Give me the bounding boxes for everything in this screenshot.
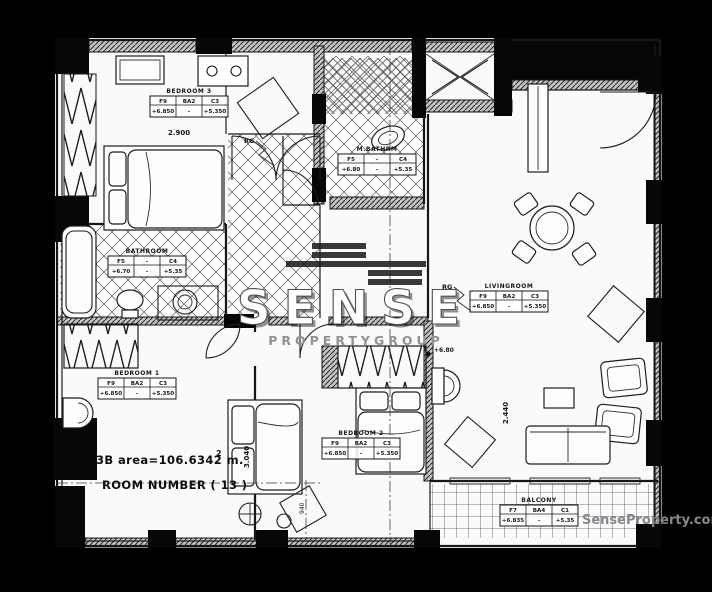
level-value: +5.350	[376, 451, 398, 457]
floorplan-canvas: BEDROOM 3 F9 BA2 C3 +6.850 - +5.350 BATH…	[0, 0, 712, 592]
level-value: +6.835	[502, 518, 524, 524]
level-value: +5.350	[204, 109, 226, 115]
shower-floor-tiles	[322, 58, 422, 114]
level-value: +6.850	[100, 391, 122, 397]
wall-speaker	[63, 398, 93, 428]
rg-marker: RG	[244, 137, 254, 145]
finish-code: F9	[107, 381, 115, 387]
room-name: BEDROOM 1	[114, 370, 159, 377]
finish-code: BA2	[183, 99, 196, 105]
level-value: +5.350	[152, 391, 174, 397]
toilet	[117, 290, 143, 310]
finish-code: C3	[531, 294, 539, 300]
watermark-website: SenseProperty.com	[582, 513, 712, 528]
dimension-label: 2.440	[502, 402, 510, 424]
level-value: +5.35	[556, 518, 575, 524]
room-name: LIVINGROOM	[485, 283, 534, 290]
room-name: BEDROOM 2	[338, 430, 383, 437]
room-number-text: ROOM NUMBER ( 13 )	[102, 478, 247, 492]
finish-code: F5	[117, 259, 125, 265]
finish-code: C1	[561, 508, 569, 514]
tv-cabinet	[432, 368, 444, 404]
wardrobe-bedroom2	[338, 346, 426, 388]
watermark-tagline: PROPERTYGROUP	[268, 333, 444, 348]
room-name: BEDROOM 3	[166, 88, 211, 95]
level-value: +5.35	[394, 167, 413, 173]
finish-code: BA2	[131, 381, 144, 387]
finish-code: BA4	[533, 508, 546, 514]
finish-code: C4	[169, 259, 177, 265]
room-name: BALCONY	[521, 497, 557, 504]
wardrobe-bedroom1	[64, 324, 138, 368]
finish-code: F9	[479, 294, 487, 300]
finish-code: C3	[383, 441, 391, 447]
armchair	[600, 358, 648, 398]
finish-code: BA2	[355, 441, 368, 447]
room-name: BATHROOM	[126, 248, 169, 255]
closet-strip	[64, 74, 96, 196]
bathtub	[62, 226, 96, 318]
level-point	[425, 351, 430, 356]
finish-code: F9	[159, 99, 167, 105]
finish-code: BA2	[503, 294, 516, 300]
dimension-label: 940	[299, 502, 306, 514]
level-value: +6.850	[324, 451, 346, 457]
dimension-label: 3.040	[243, 446, 251, 468]
finish-code: C4	[399, 157, 407, 163]
level-value: +5.35	[164, 269, 183, 275]
watermark-brand: SENSE	[237, 281, 473, 336]
finish-code: F5	[347, 157, 355, 163]
level-value: +6.850	[152, 109, 174, 115]
room-name: M.BATHRM	[357, 146, 398, 153]
level-value: +5.350	[524, 304, 546, 310]
finish-code: F9	[331, 441, 339, 447]
dimension-label: 2.900	[168, 129, 190, 137]
level-marker: +6.80	[434, 347, 454, 354]
level-value: +6.80	[342, 167, 361, 173]
level-value: +6.70	[112, 269, 131, 275]
finish-code: C3	[159, 381, 167, 387]
floorplan-image: BEDROOM 3 F9 BA2 C3 +6.850 - +5.350 BATH…	[0, 0, 712, 592]
unit-area-superscript: 2	[216, 449, 222, 458]
dining-table	[530, 206, 574, 250]
finish-code: F7	[509, 508, 517, 514]
coffee-table	[544, 388, 574, 408]
finish-code: C3	[211, 99, 219, 105]
